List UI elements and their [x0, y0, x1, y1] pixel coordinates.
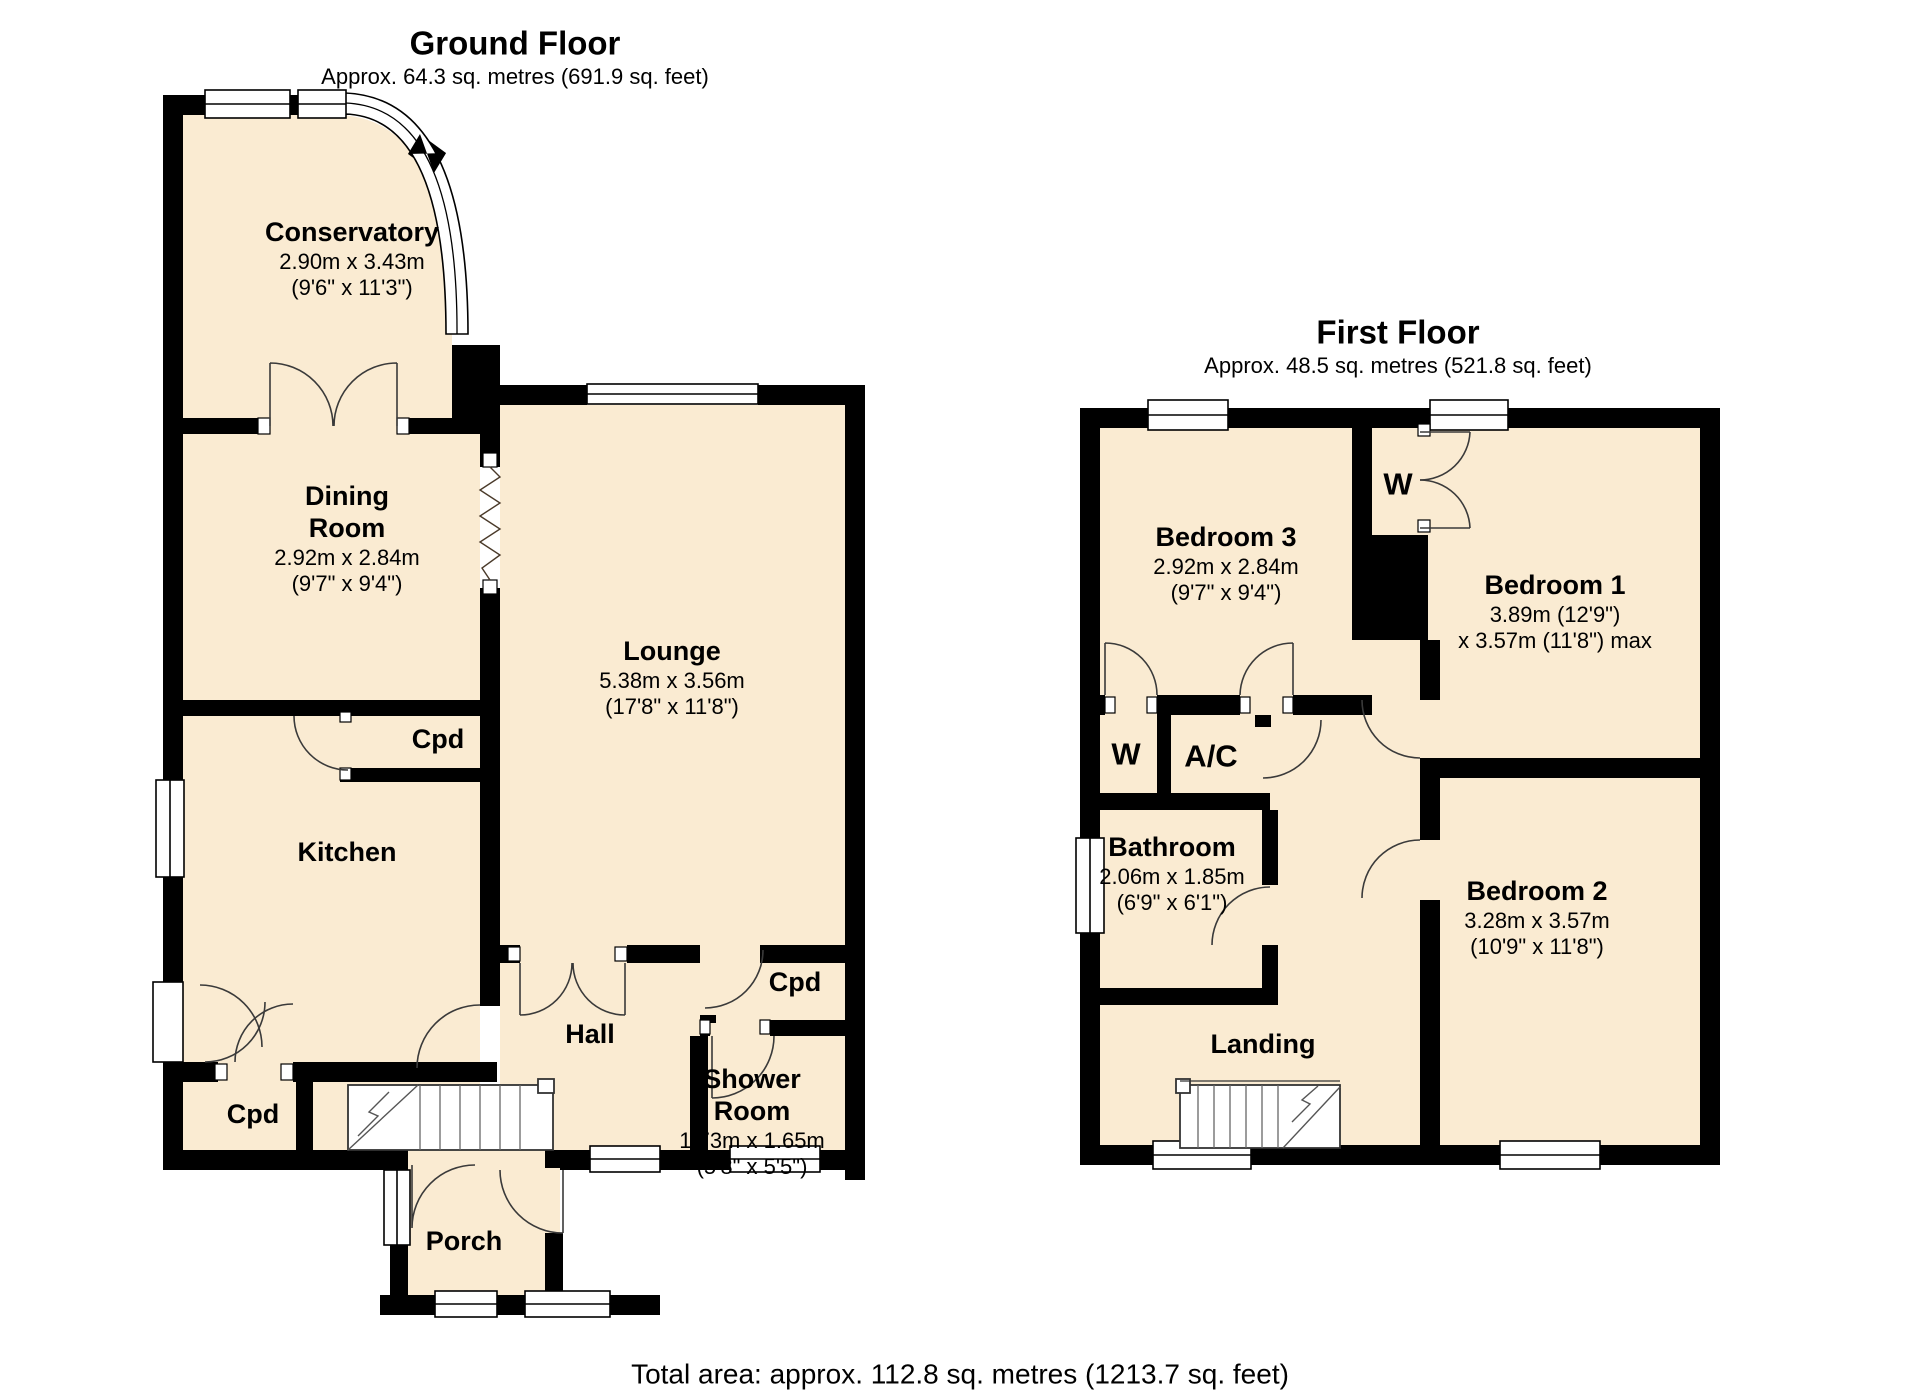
- room-dims-metric: 2.90m x 3.43m: [265, 249, 439, 275]
- room-dims-metric: 1.73m x 1.65m: [679, 1128, 825, 1154]
- room-dims-imperial: (10'9" x 11'8"): [1464, 934, 1610, 960]
- room-label-bedroom-3: Bedroom 3 2.92m x 2.84m (9'7" x 9'4"): [1153, 522, 1299, 606]
- room-label-bedroom-1: Bedroom 1 3.89m (12'9") x 3.57m (11'8") …: [1458, 570, 1652, 654]
- room-name: Room: [274, 513, 420, 545]
- ground-floor-subtitle: Approx. 64.3 sq. metres (691.9 sq. feet): [321, 64, 709, 90]
- room-dims-imperial: (17'8" x 11'8"): [599, 694, 745, 720]
- room-dims-imperial: (9'7" x 9'4"): [274, 571, 420, 597]
- room-label-lounge: Lounge 5.38m x 3.56m (17'8" x 11'8"): [599, 636, 745, 720]
- floorplan-page: Ground Floor Approx. 64.3 sq. metres (69…: [0, 0, 1920, 1396]
- room-label-porch: Porch: [426, 1226, 503, 1258]
- room-name: Dining: [274, 481, 420, 513]
- room-name: Shower: [679, 1064, 825, 1096]
- room-dims-metric: 2.92m x 2.84m: [1153, 554, 1299, 580]
- room-label-wardrobe-left: W: [1111, 737, 1140, 774]
- room-label-airing-cupboard: A/C: [1184, 739, 1237, 776]
- room-label-hall: Hall: [565, 1019, 615, 1051]
- room-label-kitchen: Kitchen: [297, 837, 396, 869]
- open-plan-divider-zigzag: [480, 467, 500, 580]
- room-label-shower-room: Shower Room 1.73m x 1.65m (5'8" x 5'5"): [679, 1064, 825, 1180]
- room-label-cpd-under-stairs: Cpd: [227, 1099, 279, 1131]
- room-dims-metric: 2.92m x 2.84m: [274, 545, 420, 571]
- total-area-footer: Total area: approx. 112.8 sq. metres (12…: [631, 1357, 1289, 1390]
- room-label-wardrobe-top: W: [1383, 467, 1412, 504]
- room-name: Lounge: [599, 636, 745, 668]
- room-label-dining-room: Dining Room 2.92m x 2.84m (9'7" x 9'4"): [274, 481, 420, 597]
- room-label-landing: Landing: [1211, 1029, 1316, 1061]
- room-name: Bedroom 1: [1458, 570, 1652, 602]
- room-label-cpd-hall: Cpd: [769, 967, 821, 999]
- room-dims-metric: 3.28m x 3.57m: [1464, 908, 1610, 934]
- first-floor-title: First Floor: [1316, 314, 1479, 353]
- room-label-bedroom-2: Bedroom 2 3.28m x 3.57m (10'9" x 11'8"): [1464, 876, 1610, 960]
- room-dims-imperial: (9'6" x 11'3"): [265, 275, 439, 301]
- room-dims-imperial: x 3.57m (11'8") max: [1458, 628, 1652, 654]
- room-dims-imperial: (9'7" x 9'4"): [1153, 580, 1299, 606]
- room-name: Conservatory: [265, 217, 439, 249]
- stairs-ground-floor: [348, 1079, 554, 1150]
- room-label-conservatory: Conservatory 2.90m x 3.43m (9'6" x 11'3"…: [265, 217, 439, 301]
- ground-floor-title: Ground Floor: [410, 25, 621, 64]
- room-dims-imperial: (5'8" x 5'5"): [679, 1154, 825, 1180]
- room-label-bathroom: Bathroom 2.06m x 1.85m (6'9" x 6'1"): [1099, 832, 1245, 916]
- first-floor-plan: [1076, 400, 1720, 1169]
- room-dims-metric: 2.06m x 1.85m: [1099, 864, 1245, 890]
- floorplan-canvas: [0, 0, 1920, 1396]
- room-dims-imperial: (6'9" x 6'1"): [1099, 890, 1245, 916]
- room-name: Bedroom 3: [1153, 522, 1299, 554]
- stairs-first-floor: [1176, 1079, 1340, 1148]
- first-floor-subtitle: Approx. 48.5 sq. metres (521.8 sq. feet): [1204, 353, 1592, 379]
- room-dims-metric: 5.38m x 3.56m: [599, 668, 745, 694]
- room-dims-metric: 3.89m (12'9"): [1458, 602, 1652, 628]
- room-name: Bathroom: [1099, 832, 1245, 864]
- room-name: Room: [679, 1096, 825, 1128]
- room-name: Bedroom 2: [1464, 876, 1610, 908]
- room-label-cpd-kitchen: Cpd: [412, 724, 464, 756]
